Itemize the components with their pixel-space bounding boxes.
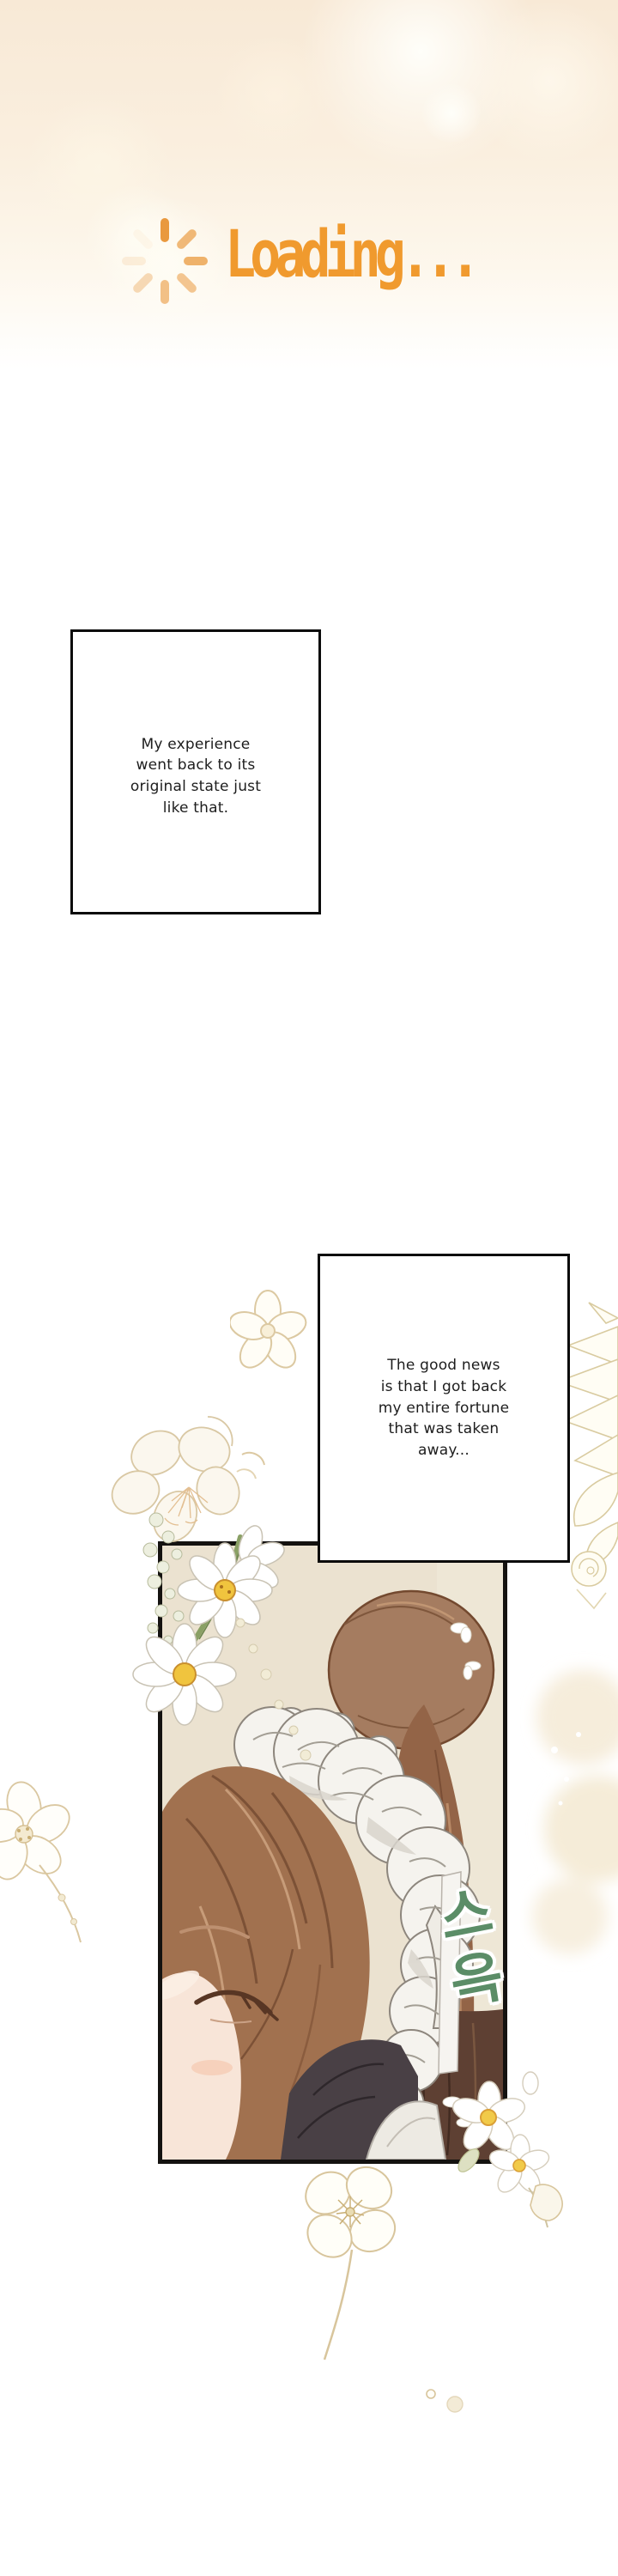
caption-box-1-text: My experience went back to its original … [130, 726, 261, 819]
cheek-blush [191, 2060, 233, 2075]
bokeh-glow [468, 0, 618, 163]
soft-flower-blobs [513, 1614, 618, 2001]
daisy-flower [178, 1543, 272, 1637]
left-edge-flower-icon [0, 1752, 110, 1958]
daisy-cluster-icon [103, 1408, 360, 1777]
top-gradient-background [0, 0, 618, 369]
bokeh-glow [215, 34, 335, 155]
spinner-icon [118, 213, 211, 306]
bokeh-glow [422, 84, 481, 143]
webtoon-page: Loading... My experience went back to it… [0, 0, 618, 2576]
daisy-flower [133, 1624, 236, 1725]
corner-flowers-icon [448, 2059, 577, 2239]
loading-label: Loading... [225, 216, 475, 293]
caption-box-2-text: The good news is that I got back my enti… [379, 1355, 510, 1461]
caption-box-1: My experience went back to its original … [70, 629, 321, 914]
